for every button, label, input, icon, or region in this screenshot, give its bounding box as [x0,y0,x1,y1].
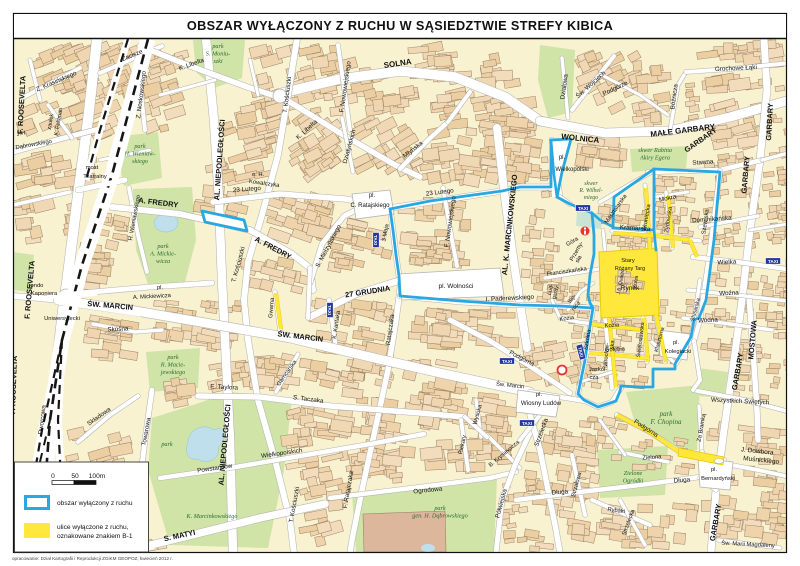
svg-text:Woźna: Woźna [719,290,739,298]
svg-text:TAXI: TAXI [578,206,588,211]
svg-text:Kozia: Kozia [604,322,620,329]
svg-text:Teatralny: Teatralny [83,174,107,180]
svg-text:Gołębia: Gołębia [605,346,626,353]
svg-text:Stary: Stary [621,258,635,264]
svg-text:ZieloneOgródki: ZieloneOgródki [623,470,644,484]
svg-text:Jaskół-: Jaskół- [589,367,607,373]
svg-text:pl.: pl. [559,155,566,161]
svg-text:pl.: pl. [673,340,680,346]
svg-text:TAXI: TAXI [327,305,332,315]
svg-text:pl.: pl. [369,193,376,199]
svg-text:opracowanie: Dział Kartografii: opracowanie: Dział Kartografii i Reprodu… [12,556,173,561]
svg-text:pl.: pl. [157,285,164,291]
svg-text:rondo: rondo [29,283,44,289]
svg-text:Wielka: Wielka [717,259,737,267]
svg-text:Kolegiacki: Kolegiacki [665,349,691,355]
svg-text:o. H.: o. H. [252,172,265,178]
svg-text:Uniwersytecki: Uniwersytecki [44,316,80,322]
svg-text:ulice wyłączone z ruchu,: ulice wyłączone z ruchu, [57,524,129,531]
svg-text:pl.: pl. [711,467,718,473]
svg-text:TAXI: TAXI [373,235,378,245]
svg-text:Długa: Długa [551,488,568,496]
svg-text:pl.: pl. [536,392,543,398]
svg-text:Skośna: Skośna [107,325,129,333]
svg-text:Bernardyński: Bernardyński [701,476,735,482]
svg-text:50: 50 [71,473,79,480]
svg-text:obszar wyłączony z ruchu: obszar wyłączony z ruchu [57,500,133,507]
svg-text:TAXI: TAXI [502,359,512,364]
svg-text:OBSZAR WYŁĄCZONY Z RUCHU W SĄS: OBSZAR WYŁĄCZONY Z RUCHU W SĄSIEDZTWIE S… [187,19,613,33]
svg-text:Wodna: Wodna [698,317,719,325]
svg-text:C. Ratajskiego: C. Ratajskiego [350,203,390,209]
svg-text:100m: 100m [89,473,106,480]
svg-text:Wiosny Ludów: Wiosny Ludów [521,400,562,407]
svg-text:Stawna: Stawna [692,158,714,166]
svg-text:park: park [160,441,173,448]
svg-text:pl. Wolności: pl. Wolności [439,283,474,290]
svg-text:most: most [86,165,99,171]
svg-text:TAXI: TAXI [522,421,532,426]
svg-text:Długa: Długa [673,476,690,484]
svg-text:Kaponiera: Kaponiera [31,291,58,297]
svg-text:oznakowane znakiem B-1: oznakowane znakiem B-1 [57,533,133,540]
svg-text:Różany Targ: Różany Targ [615,266,645,272]
svg-text:0: 0 [51,473,55,480]
svg-text:Wielkopolski: Wielkopolski [555,167,588,173]
svg-text:E. Taylora: E. Taylora [210,383,239,391]
svg-text:cza: cza [589,375,599,381]
svg-text:K. Marcinkowskiego: K. Marcinkowskiego [186,513,238,520]
svg-text:skwer RabinaAkiry Egera: skwer RabinaAkiry Egera [638,147,672,161]
svg-text:TAXI: TAXI [768,259,778,264]
